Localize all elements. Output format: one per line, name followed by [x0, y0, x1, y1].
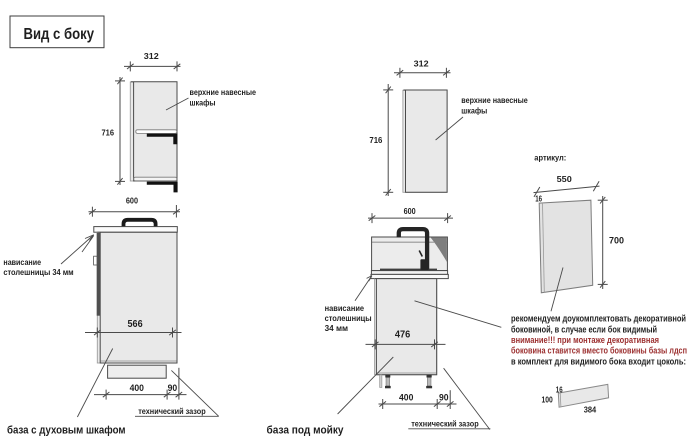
svg-text:550: 550: [557, 174, 572, 184]
svg-text:шкафы: шкафы: [190, 98, 216, 108]
svg-text:400: 400: [399, 392, 413, 402]
svg-text:312: 312: [144, 51, 159, 61]
svg-text:рекомендуем доукомплектовать д: рекомендуем доукомплектовать декоративно…: [511, 314, 686, 324]
svg-text:Вид с боку: Вид с боку: [24, 26, 95, 43]
svg-text:боковина ставится вместо боков: боковина ставится вместо боковины базы л…: [511, 345, 687, 355]
svg-text:технический зазор: технический зазор: [411, 418, 479, 428]
svg-text:476: 476: [395, 329, 411, 340]
svg-text:нависание: нависание: [3, 257, 41, 267]
svg-text:16: 16: [535, 195, 542, 204]
svg-text:верхние навесные: верхние навесные: [461, 95, 528, 105]
svg-text:артикул:: артикул:: [534, 153, 566, 163]
svg-text:716: 716: [369, 135, 382, 145]
svg-text:столешницы: столешницы: [325, 313, 372, 323]
svg-text:400: 400: [130, 383, 144, 393]
svg-text:шкафы: шкафы: [461, 105, 487, 115]
svg-text:34 мм: 34 мм: [325, 323, 349, 333]
svg-text:верхние навесные: верхние навесные: [190, 87, 257, 97]
svg-text:90: 90: [439, 392, 449, 402]
svg-text:100: 100: [542, 396, 554, 405]
svg-text:в комплект для видимого бока в: в комплект для видимого бока входит цоко…: [511, 356, 686, 366]
svg-text:600: 600: [126, 197, 139, 206]
svg-text:технический зазор: технический зазор: [138, 406, 206, 416]
svg-text:384: 384: [584, 406, 597, 415]
svg-text:716: 716: [102, 128, 115, 137]
svg-text:база под мойку: база под мойку: [267, 424, 345, 436]
svg-text:566: 566: [128, 319, 143, 330]
svg-text:столешницы 34 мм: столешницы 34 мм: [3, 267, 73, 277]
svg-text:90: 90: [168, 383, 178, 393]
svg-text:312: 312: [414, 59, 429, 69]
svg-text:база с духовым шкафом: база с духовым шкафом: [7, 425, 126, 437]
svg-text:16: 16: [556, 385, 563, 394]
svg-text:нависание: нависание: [325, 303, 365, 313]
svg-text:700: 700: [609, 236, 624, 246]
svg-text:600: 600: [404, 207, 417, 216]
svg-text:внимание!!! при монтаже декора: внимание!!! при монтаже декоративная: [511, 335, 659, 345]
svg-text:боковиной, в случае если бок в: боковиной, в случае если бок видимый: [511, 324, 657, 334]
